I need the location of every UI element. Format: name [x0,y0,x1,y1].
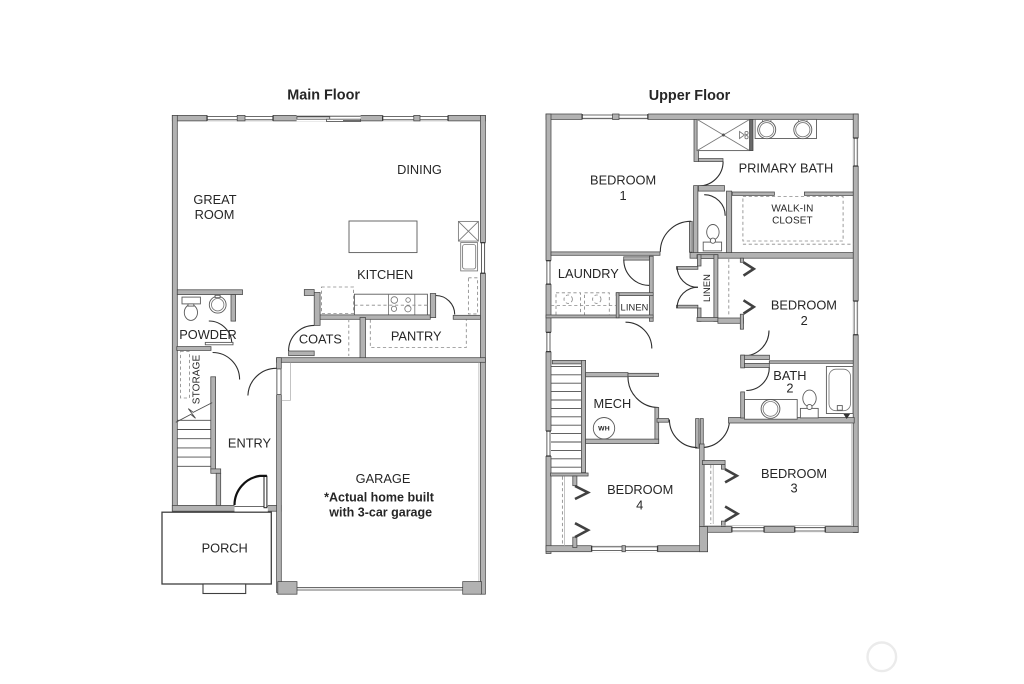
svg-text:1: 1 [619,188,626,203]
svg-text:2: 2 [801,313,808,328]
svg-text:GREAT: GREAT [193,192,236,207]
svg-text:LINEN: LINEN [702,274,712,302]
svg-text:BEDROOM: BEDROOM [761,466,827,481]
svg-text:WALK-IN: WALK-IN [771,204,813,215]
svg-text:Upper Floor: Upper Floor [649,88,731,104]
svg-text:PRIMARY BATH: PRIMARY BATH [739,160,834,175]
svg-text:BEDROOM: BEDROOM [607,482,673,497]
svg-text:CLOSET: CLOSET [772,216,813,227]
svg-text:4: 4 [636,497,643,512]
svg-text:BEDROOM: BEDROOM [771,297,837,312]
svg-text:2: 2 [786,380,793,395]
svg-text:LINEN: LINEN [621,302,649,312]
svg-text:PANTRY: PANTRY [391,329,442,344]
svg-text:BEDROOM: BEDROOM [590,173,656,188]
svg-text:*Actual home built: *Actual home built [324,491,435,505]
svg-text:WH: WH [598,426,610,433]
svg-text:STORAGE: STORAGE [192,355,203,405]
svg-text:MECH: MECH [594,396,632,411]
svg-text:3: 3 [790,480,797,495]
svg-text:KITCHEN: KITCHEN [357,267,413,282]
svg-text:ROOM: ROOM [195,207,235,222]
svg-text:LAUNDRY: LAUNDRY [558,266,619,281]
svg-text:Main Floor: Main Floor [287,88,360,104]
svg-text:ENTRY: ENTRY [228,436,272,451]
svg-text:COATS: COATS [299,332,342,347]
svg-text:with 3-car garage: with 3-car garage [328,506,432,520]
svg-text:DINING: DINING [397,162,442,177]
svg-text:PORCH: PORCH [202,541,248,556]
svg-text:POWDER: POWDER [179,327,237,342]
svg-text:GARAGE: GARAGE [356,471,411,486]
